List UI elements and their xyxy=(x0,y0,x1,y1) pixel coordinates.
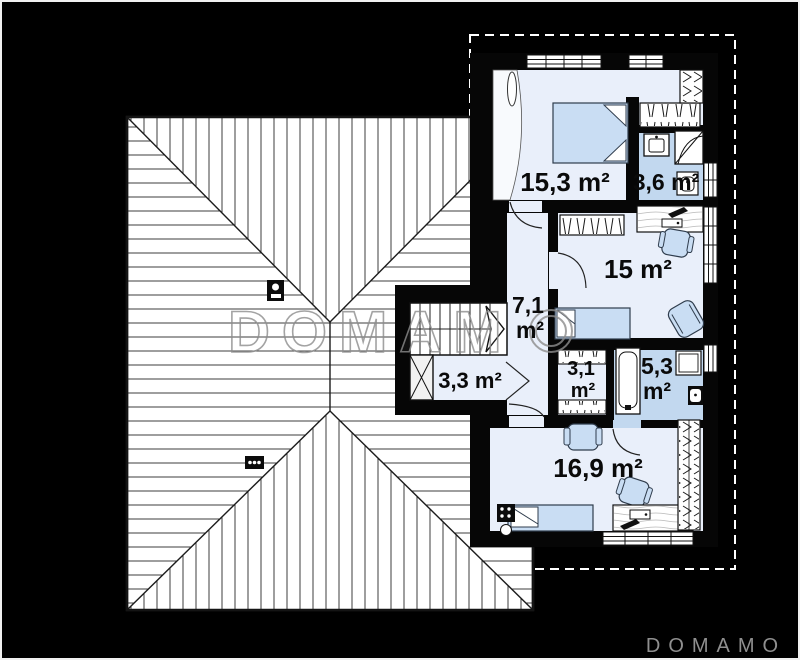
window-top-1 xyxy=(527,55,601,68)
wardrobe-hatch-icon-2 xyxy=(678,420,700,530)
watermark-text: DOMAM xyxy=(228,300,514,365)
label-bathroom-bottom-unit: m² xyxy=(643,378,671,404)
window-right-2 xyxy=(704,207,717,283)
label-wardrobe-room-unit: m² xyxy=(571,380,596,402)
closet-hangers-icon-2 xyxy=(560,215,624,235)
label-bedroom-top: 15,3 m² xyxy=(520,167,610,197)
brand-logo: DOMAMO xyxy=(646,635,786,657)
armchair-icon-2 xyxy=(564,424,602,450)
washing-machine-icon xyxy=(676,351,701,375)
label-bedroom-bottom: 16,9 m² xyxy=(553,453,643,483)
bathtub-icon xyxy=(616,348,640,414)
label-stair-landing: 3,3 m² xyxy=(438,368,502,393)
label-wardrobe-room-value: 3,1 xyxy=(567,358,595,380)
single-bed-icon-2 xyxy=(508,505,593,531)
label-bathroom-bottom-value: 5,3 xyxy=(641,353,673,379)
chimney-icon xyxy=(267,280,284,301)
window-right-3 xyxy=(704,345,717,372)
label-hall-value: 7,1 xyxy=(512,292,544,318)
closet-hangers-icon-4 xyxy=(558,400,606,414)
radiator-icon xyxy=(508,72,517,106)
label-room-middle: 15 m² xyxy=(604,254,672,284)
window-bottom xyxy=(603,532,693,545)
wardrobe-hatch-icon-1 xyxy=(680,70,703,103)
toilet-icon-2 xyxy=(688,386,703,405)
label-bathroom-top: 3,6 m² xyxy=(633,169,700,195)
corner-shower-icon xyxy=(675,131,703,164)
floor-plan-drawing: DOMAM 15,3 m² 3,6 m² 15 m² 7,1 m² 3,3 m²… xyxy=(0,0,800,660)
label-hall-unit: m² xyxy=(516,317,544,343)
window-right-1 xyxy=(704,163,717,197)
floor-plan-page: DOMAM 15,3 m² 3,6 m² 15 m² 7,1 m² 3,3 m²… xyxy=(0,0,800,660)
roof-vent-icon xyxy=(245,456,264,469)
window-top-2 xyxy=(629,55,663,68)
closet-hangers-icon-1 xyxy=(640,103,700,127)
double-bed-icon xyxy=(553,103,628,163)
sink-icon xyxy=(644,134,669,156)
desk-icon-1 xyxy=(637,206,703,232)
